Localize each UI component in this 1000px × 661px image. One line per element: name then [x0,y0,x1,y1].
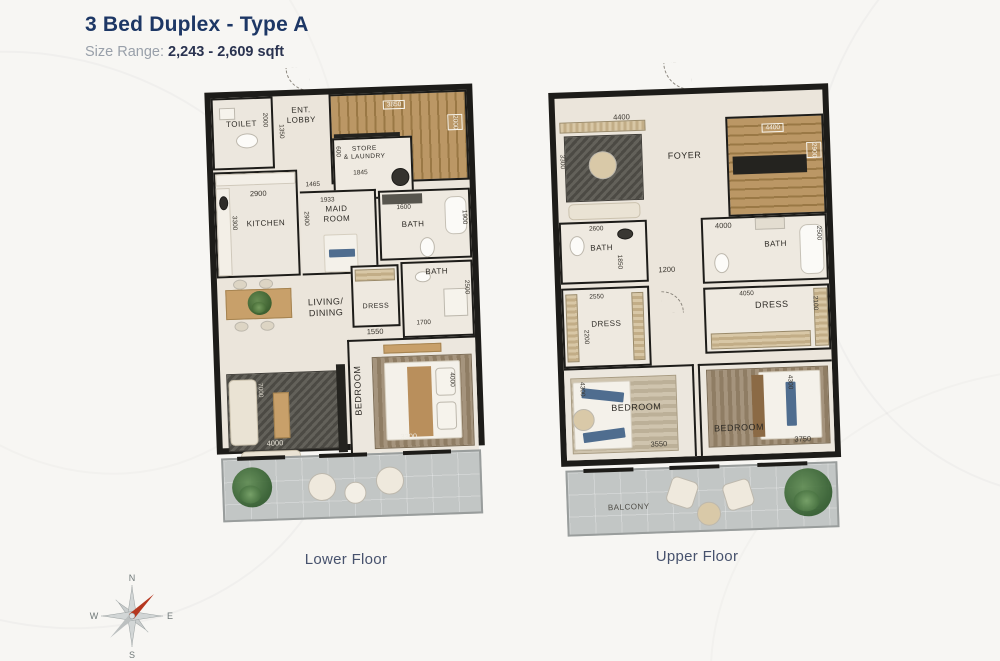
bedroom-right-height-dim: 4300 [786,375,794,390]
bed-runner [407,366,433,437]
sink-fixture [219,108,235,121]
room-dress-right [703,283,831,353]
stairs-width-dim: 3850 [383,100,406,110]
header: 3 Bed Duplex - Type A Size Range: 2,243 … [85,13,309,60]
lower-floor-caption: Lower Floor [212,551,480,568]
room-maid [300,189,379,276]
stairs-height-dim: 2900 [806,142,822,159]
lower-floor-plan: TOILET 2000 ENT. LOBBY 1350 1465 3850 20… [204,83,487,536]
store-laundry-label: STORE & LAUNDRY [338,144,391,162]
compass-south-label: S [129,650,135,660]
room-dress [350,264,400,328]
washer-fixture [391,168,410,187]
bath-right-width-dim: 4000 [715,221,732,231]
window-line [757,461,807,467]
bedroom-width-dim: 3300 [400,432,417,442]
balcony-table [344,481,367,504]
wardrobe [559,120,645,134]
bed-blanket [581,388,624,402]
bath-top-label: BATH [393,219,433,230]
bath-mid-label: BATH [417,266,457,277]
bed-blanket [583,427,626,443]
upper-floor-outline: 4400 3300 FOYER 4400 2900 2600 BATH 1850 [548,83,841,467]
bath-left-width-dim: 2600 [589,225,604,233]
page-background: 3 Bed Duplex - Type A Size Range: 2,243 … [0,0,1000,661]
stairs-width-dim: 4400 [761,123,784,133]
compass-west-label: W [90,611,99,621]
kitchen-height-dim: 3300 [231,216,239,231]
wardrobe [565,294,579,362]
maid-height-dim: 2900 [303,211,311,226]
stairs-height-dim: 2000 [447,114,463,131]
lounge-height-dim: 7000 [256,383,264,398]
store-height-dim: 600 [334,146,341,157]
room-lounge [220,362,349,458]
window-line [669,464,719,470]
dress-left-height-dim: 2200 [583,330,591,345]
kitchen-label: KITCHEN [241,218,291,230]
bath-left-height-dim: 1850 [616,255,624,270]
compass-east-label: E [167,611,173,621]
toilet-dim: 2000 [261,113,269,128]
plant-decor [231,467,272,508]
lower-balcony [221,449,483,522]
bedroom-height-dim: 4000 [448,372,456,387]
upper-floor-caption: Upper Floor [556,548,838,565]
wardrobe [355,268,395,281]
coffee-table [273,392,291,439]
bedroom-left-height-dim: 4300 [578,382,586,397]
corridor-dim: 1465 [305,181,320,189]
dress-right-width-dim: 4050 [739,290,754,298]
size-range: Size Range: 2,243 - 2,609 sqft [85,44,309,60]
plant-decor [783,467,833,517]
compass-rose: N S E W [88,572,176,660]
dress-right-label: DRESS [748,299,796,312]
bedroom-left-width-dim: 3550 [650,439,667,449]
window-line [583,467,633,473]
lounge-width-dim: 4000 [266,438,283,448]
size-range-label: Size Range: [85,44,164,60]
bath-top-height-dim: 1900 [461,210,469,225]
tv-unit [336,364,348,452]
vanity-counter [755,217,785,230]
upper-balcony [565,461,839,536]
maid-width-dim: 1933 [320,196,335,204]
desk-furniture [383,343,441,354]
sofa-furniture [228,379,258,446]
bath-right-label: BATH [755,239,795,250]
toilet-fixture [714,253,730,274]
toilet-fixture [236,133,259,149]
door-arc [661,290,684,313]
balcony-chair [375,466,404,495]
sink-fixture [617,228,633,240]
dining-chair [234,321,248,331]
living-dining-label: LIVING/ DINING [302,296,351,320]
bath-mid-width-dim: 1700 [416,319,431,327]
maid-bed-blanket [329,249,355,258]
toilet-fixture [420,237,436,258]
wardrobe [631,292,645,360]
wardrobe [711,330,811,349]
stairs-landing [733,154,808,175]
bath-left-label: BATH [582,243,622,254]
dress-left-label: DRESS [584,318,628,330]
room-toilet [211,96,275,170]
kitchen-width-dim: 2900 [250,189,267,199]
dress-right-height-dim: 2100 [811,296,819,311]
sofa-furniture [568,202,641,221]
window-line [319,452,367,458]
store-width-dim: 1845 [353,169,368,177]
bath-top-width-dim: 1600 [396,204,411,212]
kitchen-counter [215,172,295,187]
bedroom-right-width-dim: 3750 [794,434,811,444]
room-seating [555,119,654,222]
pillow [436,401,457,430]
lower-floor-outline: TOILET 2000 ENT. LOBBY 1350 1465 3850 20… [204,83,484,454]
toilet-label: TOILET [219,119,263,131]
lobby-dim: 1350 [277,124,285,139]
stairs-area: 4400 2900 [725,113,826,216]
balcony-chair [665,475,700,510]
window-line [403,449,451,455]
bath-mid-height-dim: 2500 [463,280,471,295]
seating-height-dim: 3300 [558,154,566,169]
entrance-door-arc [663,62,692,91]
bath-right-height-dim: 2500 [815,226,823,241]
balcony-label: BALCONY [599,501,659,513]
dress-label: DRESS [356,302,396,312]
room-living-dining [217,276,352,365]
room-bedroom-right [698,359,835,456]
maid-room-label: MAID ROOM [314,204,359,226]
window-line [237,455,285,461]
page-title: 3 Bed Duplex - Type A [85,13,309,37]
balcony-chair [721,477,756,512]
size-range-value: 2,243 - 2,609 sqft [168,44,284,60]
round-rug [572,409,595,432]
dining-chair [260,321,274,331]
dining-chair [233,279,247,289]
seating-width-dim: 4400 [613,112,630,122]
bedroom-label: BEDROOM [352,365,365,415]
compass-north-label: N [129,573,136,583]
balcony-table [697,501,722,526]
balcony-chair [308,472,337,501]
dining-chair [259,279,273,289]
living-dim: 1550 [367,327,384,337]
upper-floor-plan: 4400 3300 FOYER 4400 2900 2600 BATH 1850 [548,83,846,543]
hall-dim: 1200 [658,265,675,275]
dress-left-width-dim: 2550 [589,293,604,301]
foyer-label: FOYER [656,149,712,162]
